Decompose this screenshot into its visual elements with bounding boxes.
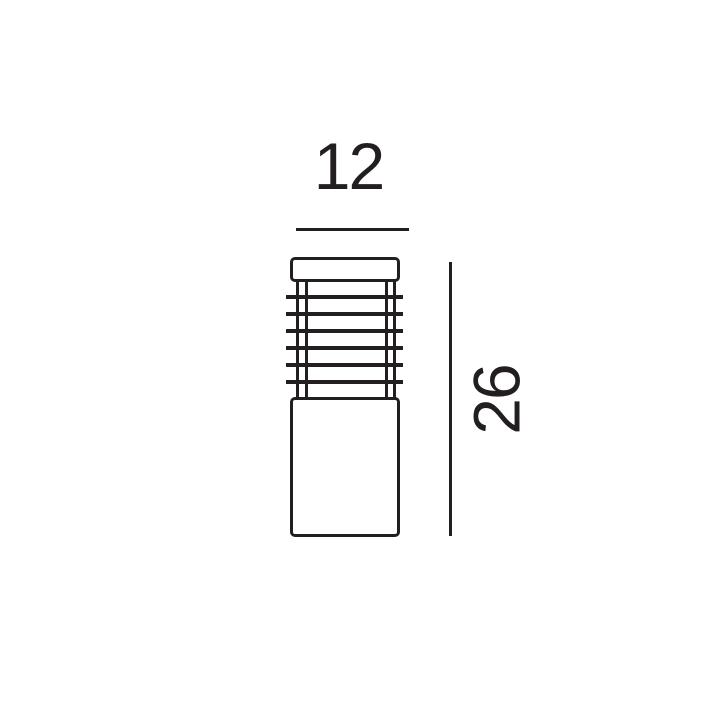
- fixture-top-cap: [290, 257, 400, 282]
- fixture-grille: [0, 0, 720, 720]
- grille-rail: [393, 279, 396, 400]
- grille-rail: [296, 279, 299, 400]
- grille-slat: [286, 380, 403, 384]
- grille-slat: [286, 329, 403, 333]
- height-dimension-label: 26: [464, 330, 530, 471]
- grille-slat: [286, 312, 403, 316]
- width-dimension-line: [296, 228, 409, 231]
- grille-slat: [286, 363, 403, 367]
- grille-slat: [286, 295, 403, 299]
- grille-rail: [305, 279, 308, 400]
- fixture-body: [290, 397, 400, 537]
- height-dimension-line: [449, 262, 452, 536]
- grille-slat: [286, 346, 403, 350]
- width-dimension-label: 12: [292, 133, 405, 199]
- technical-drawing-canvas: 12 26: [0, 0, 720, 720]
- grille-rail: [385, 279, 388, 400]
